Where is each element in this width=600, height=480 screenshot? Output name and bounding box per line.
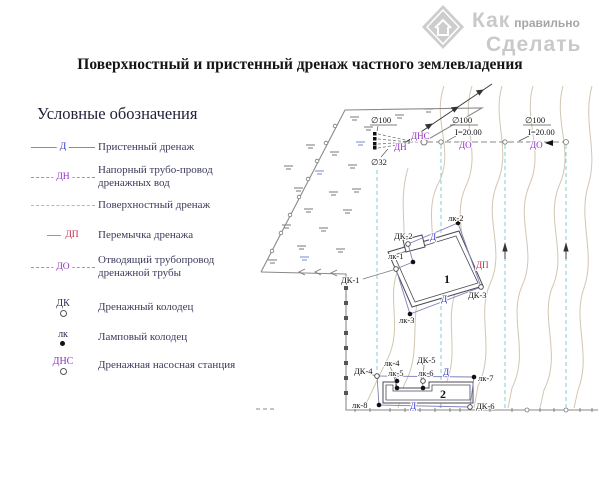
well-label-lk7: лк-7	[478, 373, 493, 383]
pipe-diameter-label: ∅100	[452, 115, 472, 125]
well-label-lk3: лк-3	[399, 315, 414, 325]
site-plan-drawing: ∅100 ∅32 ДНС ДН ∅100 I=20.00 ДО ∅100 I=2…	[0, 0, 600, 480]
well-label-dk5: ДК-5	[417, 355, 436, 365]
building-2-number: 2	[440, 387, 446, 401]
pipe-diameter-label: ∅100	[525, 115, 545, 125]
wall-drain-label: Д	[443, 367, 449, 377]
jumper-label: ДП	[476, 260, 489, 270]
pipe-slope-label: I=20.00	[455, 127, 482, 137]
well-label-dk3: ДК-3	[468, 290, 487, 300]
drainage-plan-page: { "watermark": { "word1": "Как", "word2"…	[0, 0, 600, 480]
pump-station-label: ДНС	[411, 131, 430, 141]
outlet-pipe-label: ДО	[530, 140, 543, 150]
swamp-marks-blue	[300, 142, 365, 260]
building-1-number: 1	[444, 272, 450, 286]
flow-direction-arrow	[545, 140, 553, 146]
well-label-lk4: лк-4	[384, 358, 400, 368]
well-label-dk1: ДК-1	[341, 275, 360, 285]
pipe-slope-label: I=20.00	[528, 127, 555, 137]
wall-drain-label: Д	[410, 401, 416, 411]
pipe-diameter-label: ∅32	[371, 157, 387, 167]
well-label-lk1: лк-1	[388, 251, 403, 261]
pressure-pipe-label: ДН	[394, 142, 407, 152]
well-label-lk2: лк-2	[448, 213, 463, 223]
well-label-dk6: ДК-6	[476, 401, 495, 411]
well-label-lk8: лк-8	[352, 400, 367, 410]
outlet-pipe-label: ДО	[459, 140, 472, 150]
wall-drain-label: Д	[441, 294, 447, 304]
well-label-dk4: ДК-4	[354, 366, 373, 376]
well-label-lk5: лк-5	[388, 368, 403, 378]
pipe-diameter-label: ∅100	[371, 115, 391, 125]
well-label-dk2: ДК-2	[394, 231, 413, 241]
wall-drain-label: Д	[430, 232, 436, 242]
well-label-lk6: лк-6	[418, 368, 433, 378]
